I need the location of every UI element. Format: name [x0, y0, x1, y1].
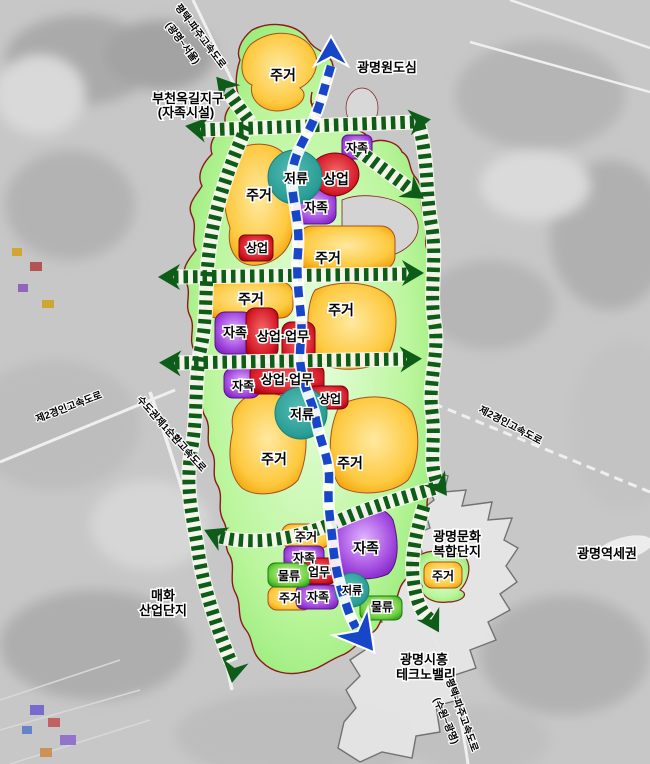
zone-label-residential: 주거 [246, 187, 272, 203]
zone-label-detention: 저류 [290, 407, 314, 422]
zone-label-residential: 주거 [279, 590, 301, 605]
zone-label-commercial: 상업 [319, 391, 341, 406]
zone-label-self-sufficiency: 자족 [232, 378, 254, 393]
area-label-station-area: 광명역세권 [577, 546, 637, 561]
zone-label-detention: 저류 [342, 583, 362, 597]
zone-label-commercial: 상업 [323, 171, 349, 187]
zone-label-self-sufficiency: 자족 [293, 550, 315, 565]
area-label-wondosim: 광명원도심 [357, 60, 417, 75]
zone-label-commercial-business: 상업·업무 [257, 329, 309, 344]
zone-label-residential: 주거 [315, 250, 341, 266]
zone-label-residential: 주거 [261, 451, 287, 467]
zone-label-residential: 주거 [328, 302, 354, 318]
zone-label-self-sufficiency: 자족 [353, 540, 379, 556]
area-label-culture-complex: 복합단지 [433, 544, 481, 559]
zone-label-business: 업무 [308, 565, 330, 579]
zone-label-logistics: 물류 [371, 600, 393, 614]
zone-label-self-sufficiency: 자족 [346, 140, 368, 155]
zone-label-residential: 주거 [295, 529, 317, 544]
area-label-bucheon-okgil: (자족시설) [158, 105, 215, 120]
zone-residential-3 [298, 226, 395, 270]
zone-label-commercial-business: 상업·업무 [261, 372, 313, 387]
zone-label-residential: 주거 [337, 455, 363, 471]
zone-label-commercial: 상업 [246, 240, 268, 255]
area-label-maehwa: 산업단지 [139, 603, 187, 618]
area-label-bucheon-okgil: 부천옥길지구 [152, 91, 224, 106]
zone-label-residential: 주거 [238, 291, 264, 307]
zone-label-self-sufficiency: 자족 [307, 589, 329, 604]
area-label-maehwa: 매화 [151, 588, 175, 603]
zone-label-residential: 주거 [270, 67, 296, 83]
area-label-technovalley: 광명시흥 [400, 652, 448, 667]
zone-label-residential: 주거 [432, 568, 454, 583]
landuse-concept-map: 주거 주거 주거 주거 주거 주거 주거 주거 주거 주거 상업 상업 상업 상… [0, 0, 650, 764]
zone-label-detention: 저류 [284, 171, 308, 186]
area-label-culture-complex: 광명문화 [433, 529, 481, 544]
zone-residential-7 [330, 397, 418, 493]
zone-label-self-sufficiency: 자족 [304, 200, 328, 215]
zone-label-self-sufficiency: 자족 [223, 325, 247, 340]
map-canvas: 주거 주거 주거 주거 주거 주거 주거 주거 주거 주거 상업 상업 상업 상… [0, 0, 650, 764]
zone-label-logistics: 물류 [278, 569, 300, 583]
